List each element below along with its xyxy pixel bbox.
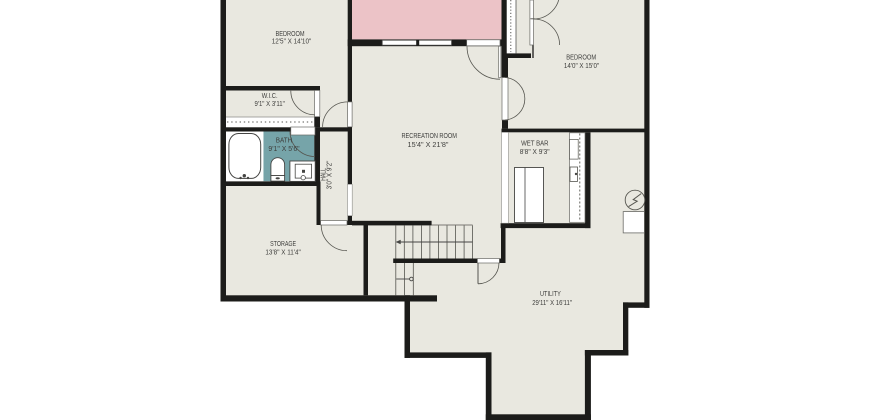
svg-text:15'4" X 21'8": 15'4" X 21'8" [408, 142, 449, 149]
svg-text:12'5" X 14'10": 12'5" X 14'10" [272, 39, 312, 46]
svg-text:3'0" X 9'2": 3'0" X 9'2" [327, 160, 334, 189]
svg-text:WET BAR: WET BAR [521, 141, 548, 148]
svg-text:14'0" X 15'0": 14'0" X 15'0" [564, 63, 600, 70]
svg-text:8'8" X 9'3": 8'8" X 9'3" [520, 149, 550, 156]
svg-text:29'11" X 16'11": 29'11" X 16'11" [532, 300, 572, 307]
svg-text:RECREATION ROOM: RECREATION ROOM [402, 133, 458, 140]
svg-text:9'1" X 5'6": 9'1" X 5'6" [268, 146, 300, 153]
svg-text:UTILITY: UTILITY [540, 291, 561, 298]
svg-text:9'1" X 3'11": 9'1" X 3'11" [254, 101, 285, 108]
svg-text:13'8" X 11'4": 13'8" X 11'4" [265, 250, 301, 257]
svg-text:STORAGE: STORAGE [270, 241, 296, 248]
svg-text:BEDROOM: BEDROOM [276, 31, 305, 38]
svg-text:BATH: BATH [276, 138, 293, 145]
svg-text:W.I.C.: W.I.C. [262, 93, 278, 100]
svg-text:BEDROOM: BEDROOM [566, 55, 596, 62]
